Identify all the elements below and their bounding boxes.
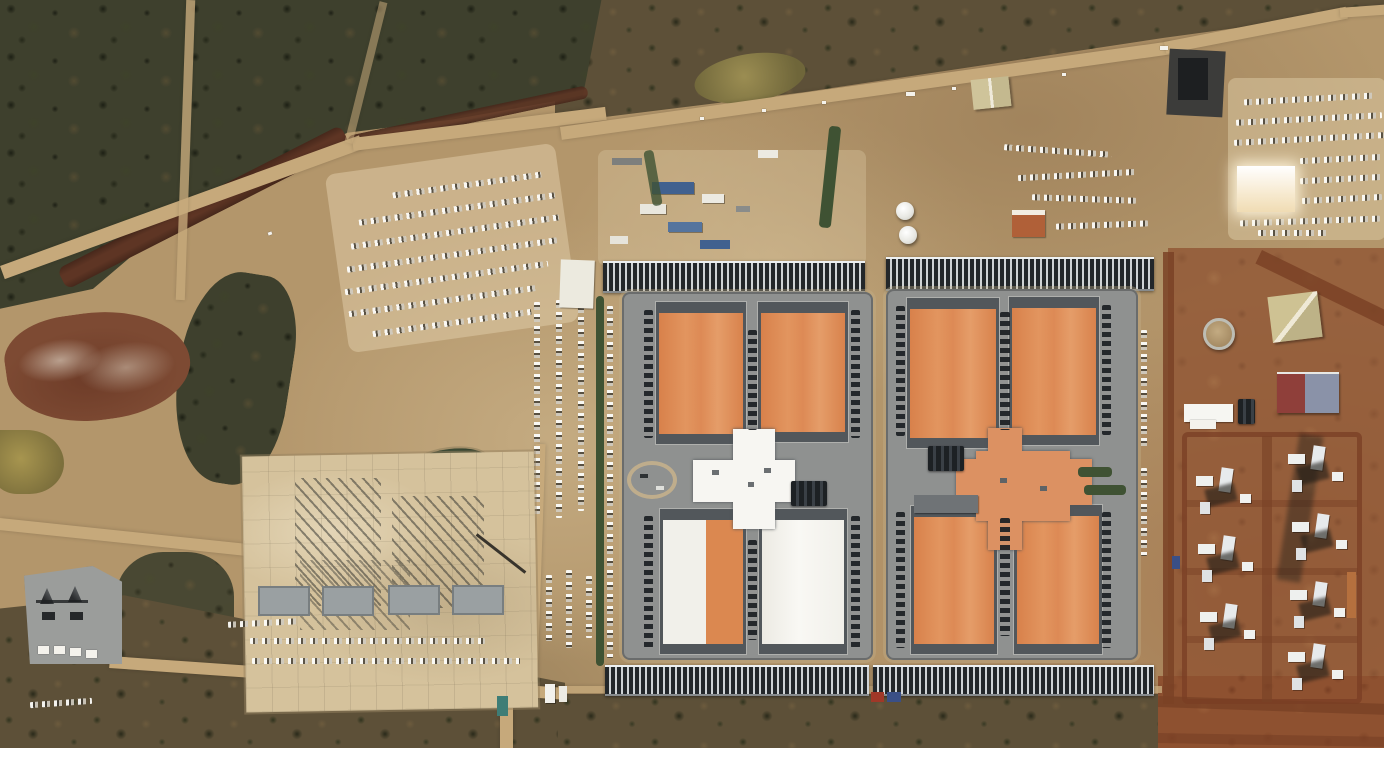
rooftop-unit xyxy=(748,482,754,487)
margin-right xyxy=(1384,0,1390,757)
building-cluster xyxy=(1290,514,1356,566)
storage-tank xyxy=(899,226,917,244)
data-hall-roof xyxy=(761,313,845,432)
generator-column xyxy=(896,306,905,436)
car-column xyxy=(1141,468,1147,556)
generator-column xyxy=(1000,312,1010,430)
small-white-building xyxy=(559,259,595,308)
site-trailer xyxy=(610,236,628,244)
car-column xyxy=(1141,330,1147,448)
generator-column xyxy=(851,516,860,648)
data-hall-nw xyxy=(656,302,746,444)
substation-building xyxy=(86,650,97,658)
parked-vehicle xyxy=(656,486,664,490)
data-hall-roof xyxy=(1012,308,1096,435)
building-cluster xyxy=(1198,604,1264,656)
vehicle xyxy=(906,92,915,96)
warehouse-khaki-large xyxy=(1267,291,1322,343)
car-column xyxy=(546,575,552,641)
landscape-median xyxy=(1078,467,1112,477)
camp-trailer xyxy=(1190,420,1216,429)
generator-column xyxy=(851,310,860,438)
data-hall-roof xyxy=(914,517,994,644)
trailer-row xyxy=(252,658,520,664)
equipment-pad xyxy=(258,586,310,616)
container xyxy=(612,158,642,165)
generator-column xyxy=(1102,305,1111,435)
warehouse-khaki xyxy=(971,76,1012,110)
satellite-image xyxy=(0,0,1390,757)
data-hall-roof xyxy=(910,309,996,438)
container-stack xyxy=(1238,399,1255,424)
building-cluster xyxy=(1194,468,1260,520)
data-hall-roof xyxy=(1017,516,1099,644)
generator-column xyxy=(1000,518,1010,636)
storage-tank xyxy=(896,202,914,220)
container xyxy=(736,206,750,212)
building-cluster xyxy=(1196,536,1262,588)
car-column xyxy=(578,305,584,511)
margin-bottom xyxy=(0,748,1390,757)
teal-equipment xyxy=(497,696,508,716)
building-orange-roof xyxy=(1012,210,1045,237)
white-trailer xyxy=(545,684,555,703)
generator-column xyxy=(748,540,757,640)
tent-building-lit xyxy=(1237,166,1295,212)
building-red-blue xyxy=(1277,372,1339,413)
gray-building xyxy=(914,495,978,513)
car-column xyxy=(607,306,613,658)
container-red xyxy=(871,692,884,702)
generator-block xyxy=(791,481,827,506)
car-column xyxy=(534,302,540,514)
transformer xyxy=(42,612,55,620)
red-road-east-vertical xyxy=(1163,252,1174,704)
car-column xyxy=(566,570,572,648)
generator-block xyxy=(928,446,964,471)
trailer-row xyxy=(1258,230,1330,236)
data-hall-sw xyxy=(660,509,746,654)
vehicle xyxy=(952,87,956,90)
data-hall-roof xyxy=(663,520,743,644)
vehicle xyxy=(762,109,766,112)
generator-column xyxy=(896,512,905,648)
white-trailer xyxy=(559,686,567,702)
data-hall-roof xyxy=(659,313,743,434)
substation-building xyxy=(54,646,65,654)
vehicle xyxy=(822,101,826,104)
generator-column xyxy=(644,310,653,438)
site-trailer xyxy=(702,194,724,203)
parked-vehicle xyxy=(640,474,648,478)
cross-horizontal xyxy=(693,460,795,502)
equipment-pad xyxy=(388,585,440,615)
equipment-row-north-east xyxy=(886,257,1154,291)
data-hall-ne xyxy=(758,302,848,442)
data-hall-se xyxy=(759,509,847,654)
equipment-pad xyxy=(452,585,504,615)
rooftop-unit xyxy=(1040,486,1047,491)
equipment-row-south-east xyxy=(873,665,1154,696)
rooftop-unit xyxy=(1000,478,1007,483)
data-hall-roof xyxy=(762,520,844,644)
rooftop-unit xyxy=(712,470,719,475)
equipment-pad xyxy=(322,586,374,616)
parking-loop xyxy=(627,461,677,499)
generator-column xyxy=(1102,512,1111,648)
landscape-median xyxy=(1084,485,1126,495)
equipment-row-south-west xyxy=(605,665,869,696)
trailer-row xyxy=(250,638,485,644)
data-hall-se xyxy=(1014,505,1102,654)
cross-center xyxy=(976,451,1070,521)
data-hall-sw xyxy=(911,506,997,654)
blue-dumpster xyxy=(1172,556,1180,569)
site-trailer xyxy=(758,150,778,158)
equipment-row-north-west xyxy=(603,261,865,293)
car-column xyxy=(586,576,592,638)
circular-tank xyxy=(1203,318,1235,350)
substation-building xyxy=(70,648,81,656)
vehicle xyxy=(1062,73,1066,76)
site-trailer xyxy=(640,204,666,214)
building-cluster xyxy=(1288,582,1354,634)
building-cluster xyxy=(1286,644,1352,696)
building-cluster xyxy=(1286,446,1352,498)
vehicle xyxy=(700,117,704,120)
material-stack-blue xyxy=(700,240,730,249)
landscape-strip xyxy=(596,296,604,666)
generator-column xyxy=(748,330,757,430)
vehicle xyxy=(1160,46,1168,50)
dark-building xyxy=(1178,58,1208,100)
transformer xyxy=(70,612,83,620)
container-blue xyxy=(887,692,901,702)
data-hall-ne xyxy=(1009,297,1099,445)
substation-building xyxy=(38,646,49,654)
switchgear xyxy=(36,600,88,603)
car-column xyxy=(556,300,562,518)
rooftop-unit xyxy=(764,468,771,473)
material-stack-blue xyxy=(668,222,702,232)
orange-trailer xyxy=(1347,572,1356,618)
generator-column xyxy=(644,516,653,648)
data-hall-nw xyxy=(907,298,999,448)
